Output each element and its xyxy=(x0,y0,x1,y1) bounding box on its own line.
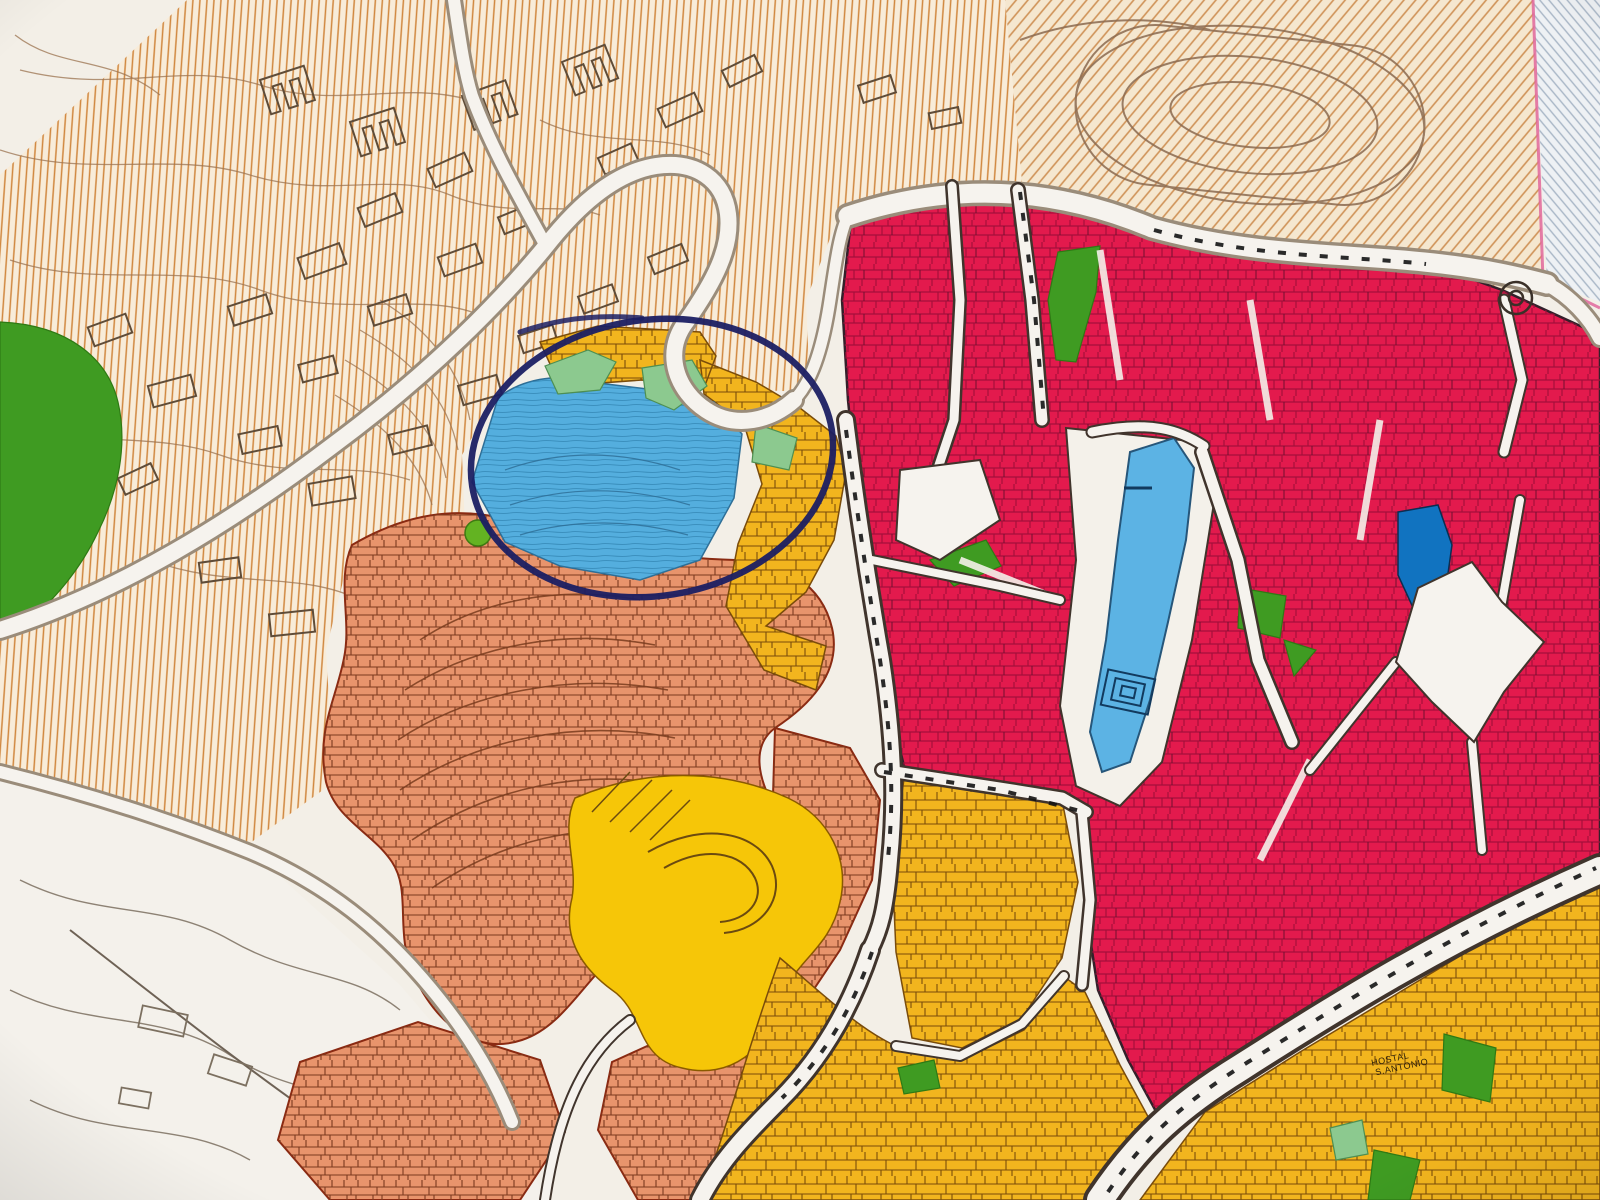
map-photo: HOSTAL S.ANTONIO xyxy=(0,0,1600,1200)
photo-vignette xyxy=(0,0,1600,1200)
zoning-map-svg: HOSTAL S.ANTONIO xyxy=(0,0,1600,1200)
